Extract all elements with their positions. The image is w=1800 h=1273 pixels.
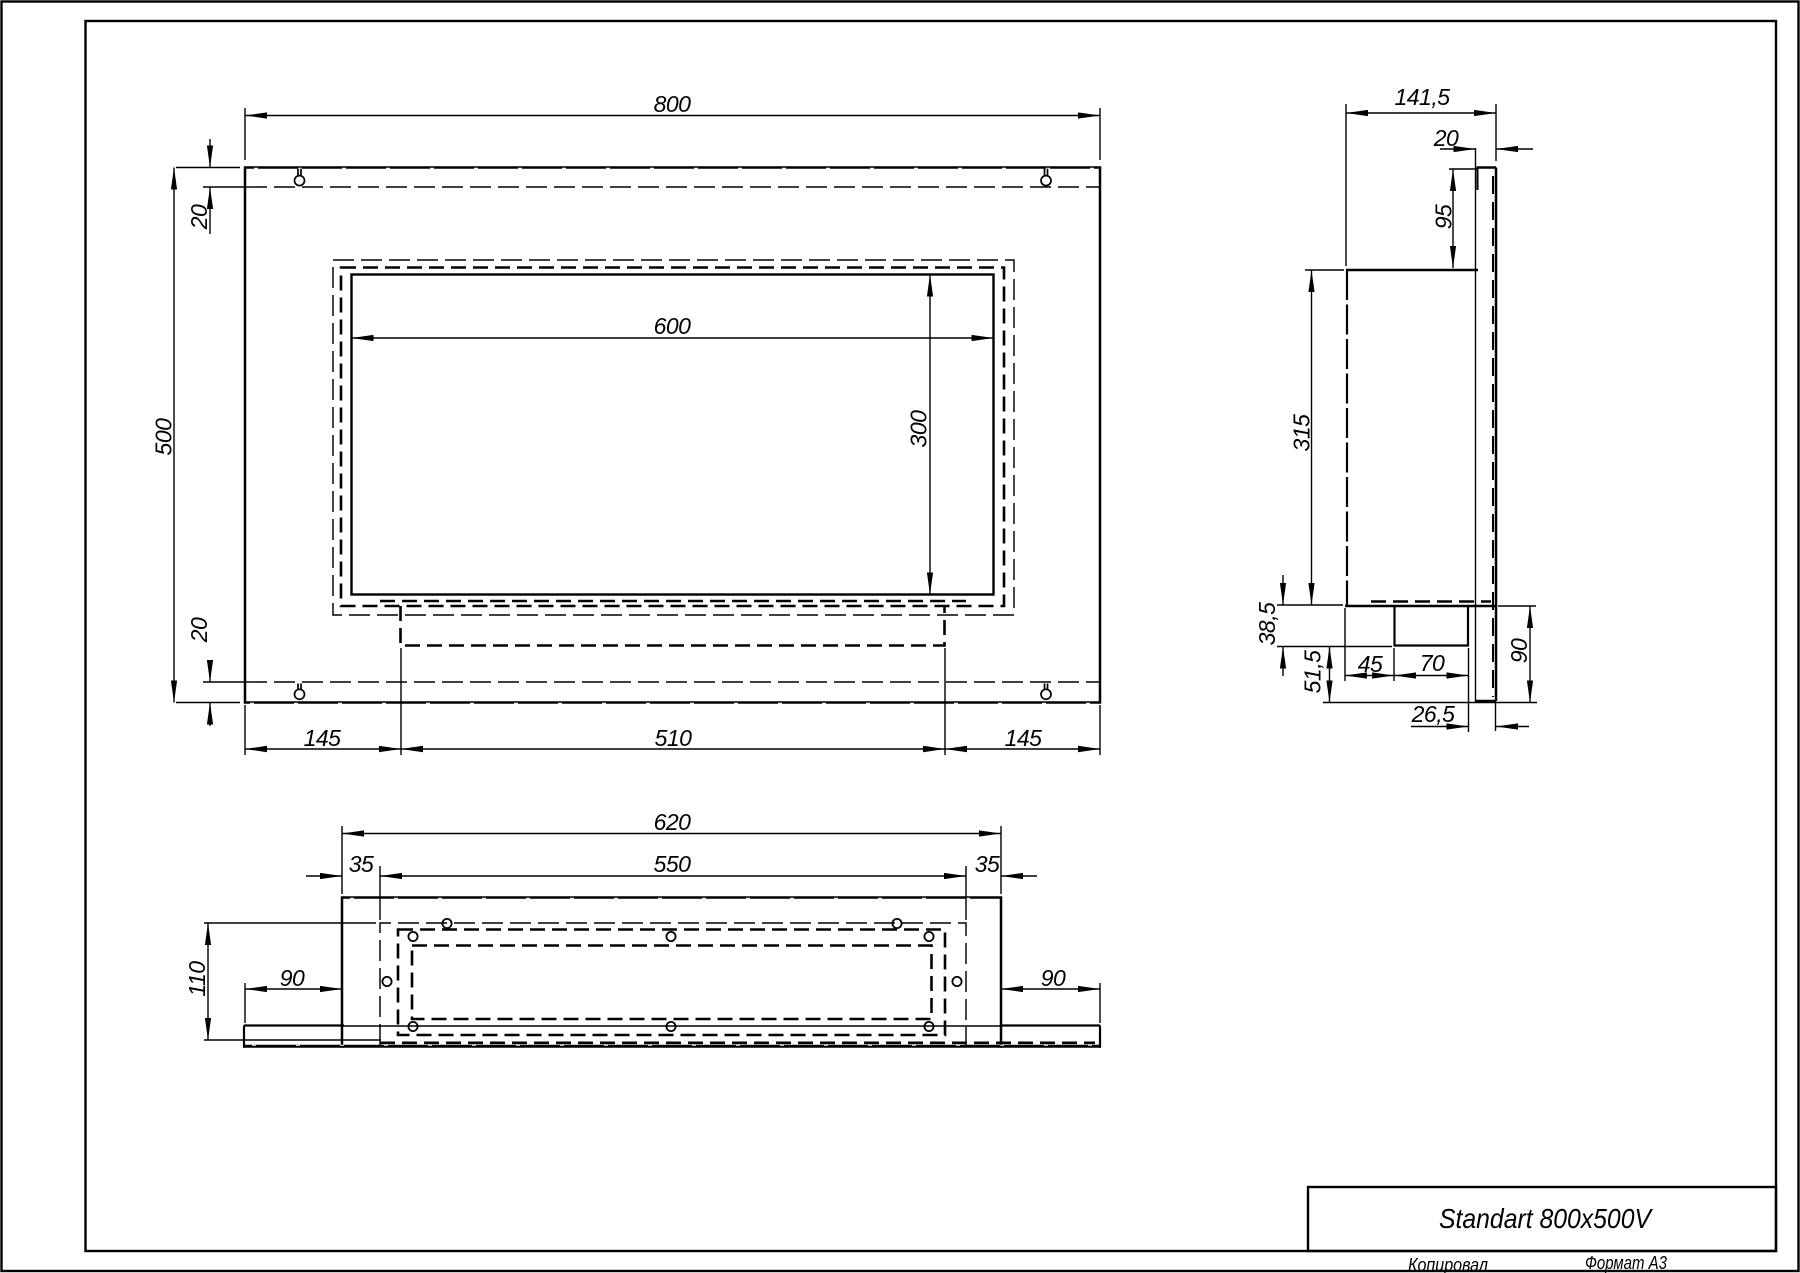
svg-text:26,5: 26,5: [1411, 701, 1455, 727]
svg-text:145: 145: [304, 725, 342, 751]
svg-text:Standart 800x500V: Standart 800x500V: [1439, 1203, 1653, 1234]
svg-text:35: 35: [975, 851, 1000, 877]
svg-text:20: 20: [186, 204, 212, 230]
svg-text:70: 70: [1420, 650, 1445, 676]
svg-text:620: 620: [654, 809, 692, 835]
svg-text:550: 550: [654, 851, 692, 877]
svg-text:145: 145: [1005, 725, 1043, 751]
svg-text:90: 90: [280, 965, 305, 991]
svg-text:600: 600: [654, 313, 692, 339]
svg-text:Формат А3: Формат А3: [1585, 1253, 1667, 1273]
svg-text:38,5: 38,5: [1254, 602, 1280, 645]
svg-text:315: 315: [1289, 414, 1315, 452]
svg-text:51,5: 51,5: [1300, 650, 1326, 693]
svg-text:20: 20: [1433, 125, 1459, 151]
svg-text:Копировал: Копировал: [1408, 1255, 1488, 1273]
svg-text:141,5: 141,5: [1394, 84, 1450, 110]
svg-text:110: 110: [184, 961, 210, 997]
svg-text:90: 90: [1041, 965, 1066, 991]
svg-text:90: 90: [1506, 638, 1532, 663]
svg-text:45: 45: [1358, 651, 1383, 677]
svg-text:300: 300: [906, 410, 932, 448]
svg-text:800: 800: [654, 91, 692, 117]
svg-text:35: 35: [349, 851, 374, 877]
svg-text:500: 500: [151, 418, 177, 456]
svg-text:95: 95: [1431, 204, 1457, 229]
svg-text:20: 20: [186, 617, 212, 643]
svg-text:510: 510: [655, 725, 693, 751]
